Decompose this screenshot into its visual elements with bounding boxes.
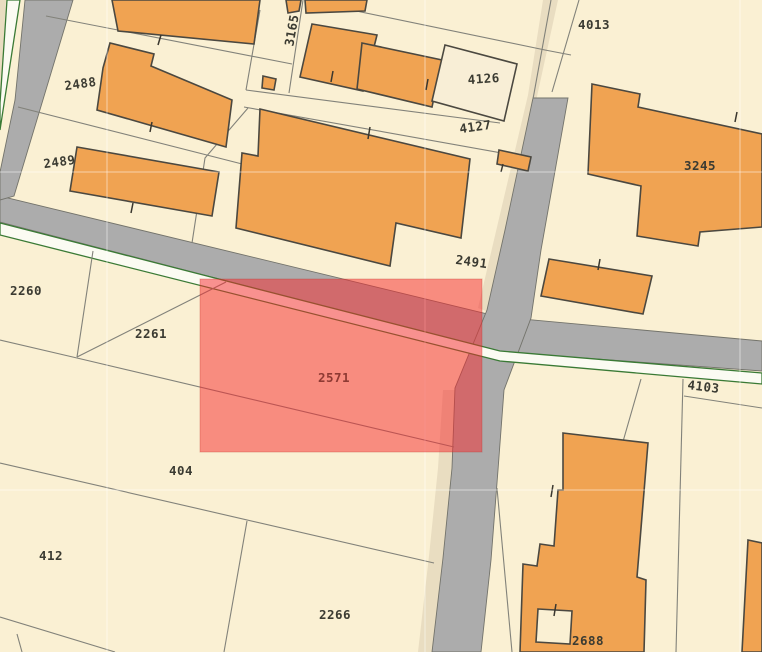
cadastral-map-viewport[interactable]: 2488248931654013412641273245249122602261… (0, 0, 762, 652)
top-strip-c (305, 0, 367, 13)
cadastral-map-canvas[interactable]: 2488248931654013412641273245249122602261… (0, 0, 762, 652)
selected-parcel-highlight[interactable] (200, 279, 482, 452)
small-square (262, 76, 276, 90)
parcel-label-2571: 2571 (318, 370, 350, 385)
parcel-label-2688: 2688 (572, 633, 604, 648)
parcel-label-2261: 2261 (135, 326, 167, 341)
parcel-label-412: 412 (39, 548, 63, 563)
top-strip-b (286, 0, 301, 13)
parcel-label-404: 404 (169, 463, 193, 478)
parcel-label-2260: 2260 (10, 283, 42, 298)
parcel-label-4013: 4013 (578, 17, 610, 32)
parcel-label-3245: 3245 (684, 158, 716, 173)
parcel-label-2266: 2266 (319, 607, 351, 622)
parcel-label-4126: 4126 (467, 70, 500, 87)
